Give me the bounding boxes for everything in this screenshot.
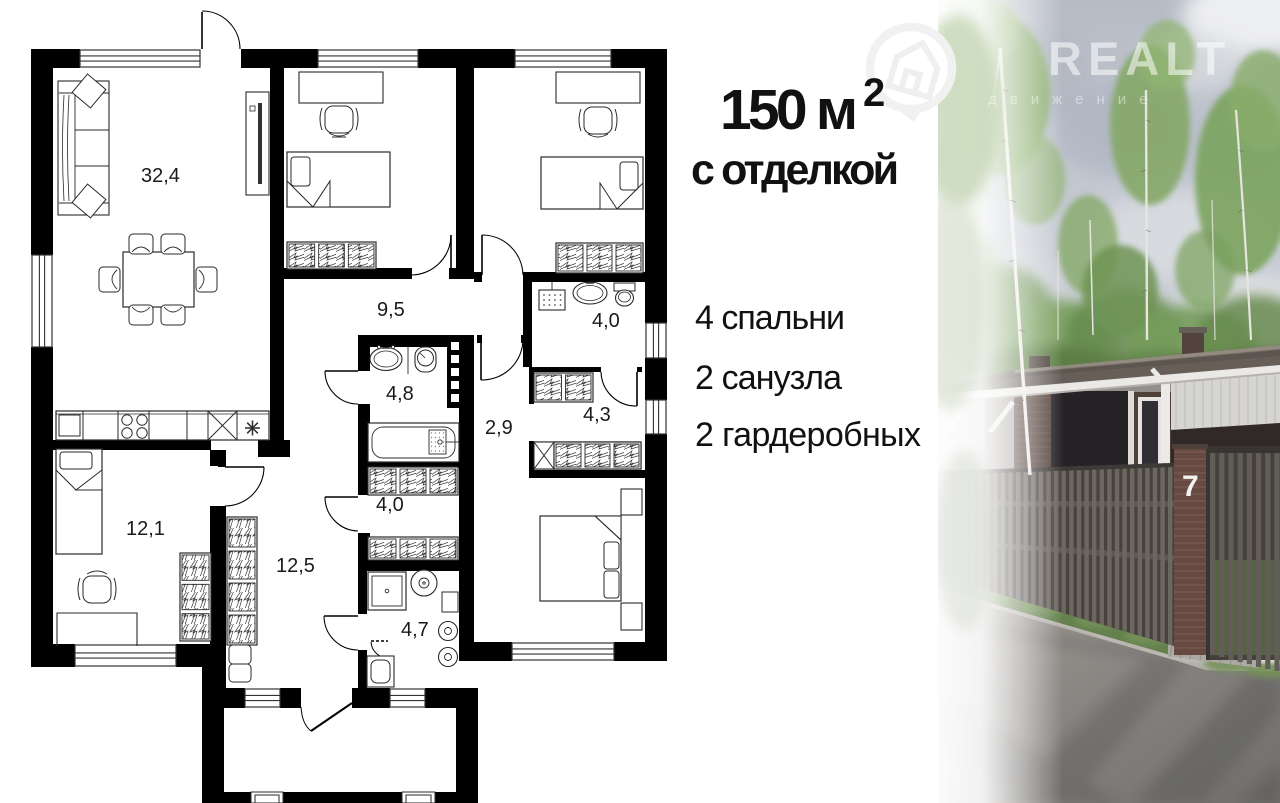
svg-text:4,8: 4,8 <box>386 383 414 405</box>
svg-text:REALT: REALT <box>1048 32 1231 85</box>
svg-text:32,4: 32,4 <box>141 165 180 187</box>
svg-text:12,5: 12,5 <box>276 555 315 577</box>
svg-text:4,3: 4,3 <box>583 404 611 426</box>
svg-text:12,1: 12,1 <box>126 518 165 540</box>
svg-text:150 м: 150 м <box>720 78 858 142</box>
svg-text:4,7: 4,7 <box>401 619 429 641</box>
svg-text:4,0: 4,0 <box>592 310 620 332</box>
svg-text:2,9: 2,9 <box>485 417 513 439</box>
svg-text:2 гардеробных: 2 гардеробных <box>695 416 921 454</box>
svg-text:с отделкой: с отделкой <box>691 146 899 194</box>
svg-text:4,0: 4,0 <box>376 494 404 516</box>
svg-text:4 спальни: 4 спальни <box>695 299 845 337</box>
svg-text:9,5: 9,5 <box>377 299 405 321</box>
svg-text:движение: движение <box>988 91 1160 108</box>
svg-text:2: 2 <box>863 71 885 115</box>
svg-text:2 санузла: 2 санузла <box>695 359 842 397</box>
